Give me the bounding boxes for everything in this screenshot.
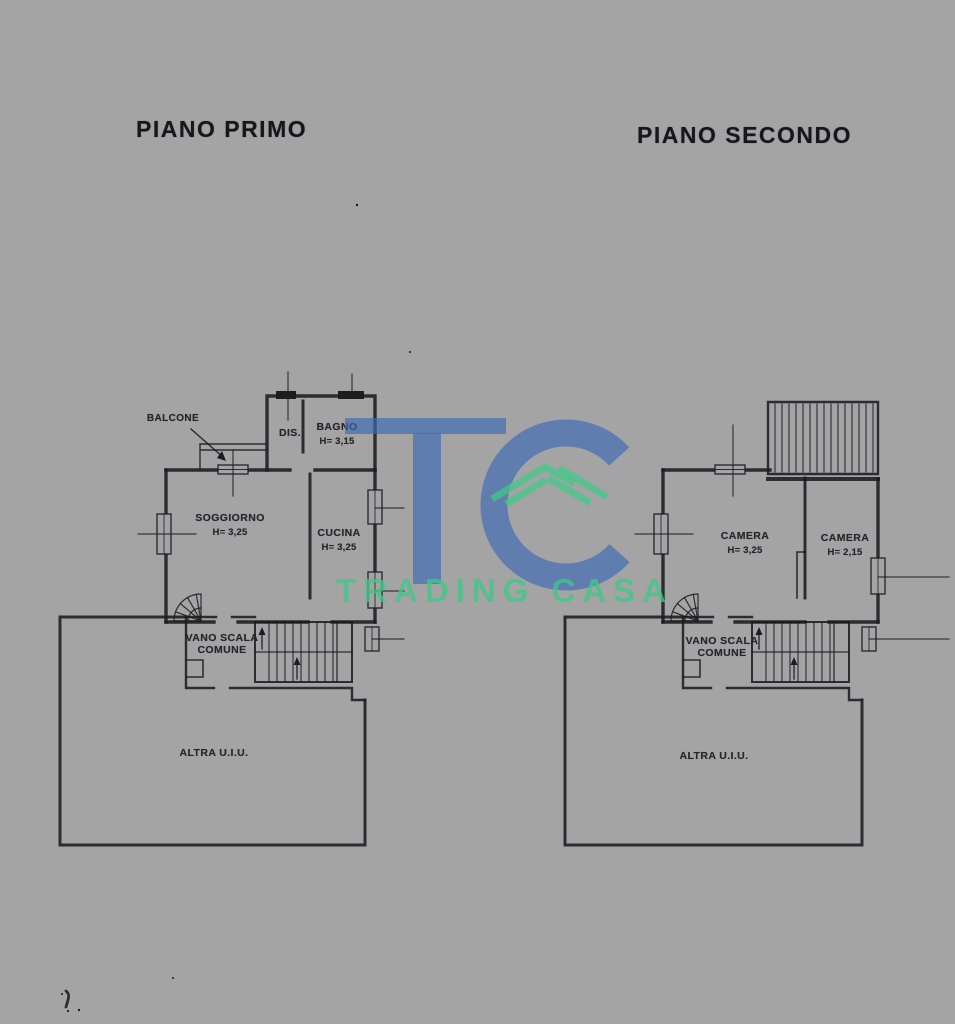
room-label-bagno: BAGNO H= 3,15 xyxy=(305,421,369,448)
room-name: BAGNO xyxy=(305,421,369,433)
plan-title-piano-primo: PIANO PRIMO xyxy=(136,116,307,143)
room-name: ALTRA U.I.U. xyxy=(680,750,749,762)
room-label-dis: DIS. xyxy=(270,427,310,439)
room-name: CUCINA xyxy=(306,527,372,539)
room-height: H= 3,15 xyxy=(305,436,369,448)
room-name: VANO SCALA xyxy=(684,635,760,647)
agency-watermark xyxy=(0,0,955,1024)
room-name: VANO SCALA xyxy=(184,632,260,644)
room-name-line2: COMUNE xyxy=(184,644,260,656)
room-label-altra-uiu-secondo: ALTRA U.I.U. xyxy=(662,750,766,762)
piano-secondo-drawing xyxy=(565,402,949,845)
room-name: BALCONE xyxy=(147,413,199,424)
room-height: H= 3,25 xyxy=(178,527,282,539)
room-height: H= 3,25 xyxy=(693,545,797,557)
room-name: CAMERA xyxy=(693,530,797,542)
room-name: CAMERA xyxy=(812,532,878,544)
room-label-altra-uiu-primo: ALTRA U.I.U. xyxy=(162,747,266,759)
watermark-agency-name: TRADING CASA xyxy=(336,572,673,610)
room-label-cucina: CUCINA H= 3,25 xyxy=(306,527,372,554)
watermark-initials-tc xyxy=(345,418,638,584)
room-name: SOGGIORNO xyxy=(178,512,282,524)
room-label-camera-2: CAMERA H= 2,15 xyxy=(812,532,878,559)
room-label-soggiorno: SOGGIORNO H= 3,25 xyxy=(178,512,282,539)
room-name-line2: COMUNE xyxy=(684,647,760,659)
room-name: DIS. xyxy=(279,427,301,439)
scanned-floorplan-page: PIANO PRIMO PIANO SECONDO xyxy=(0,0,955,1024)
watermark-roof-icon xyxy=(492,467,607,504)
room-label-balcone: BALCONE xyxy=(138,413,208,425)
room-label-vano-scala-secondo: VANO SCALA COMUNE xyxy=(684,635,760,659)
room-height: H= 2,15 xyxy=(812,547,878,559)
room-label-camera-1: CAMERA H= 3,25 xyxy=(693,530,797,557)
floorplan-linework xyxy=(0,0,955,1024)
room-name: ALTRA U.I.U. xyxy=(180,747,249,759)
plan-title-piano-secondo: PIANO SECONDO xyxy=(637,122,852,149)
room-height: H= 3,25 xyxy=(306,542,372,554)
room-label-vano-scala-primo: VANO SCALA COMUNE xyxy=(184,632,260,656)
